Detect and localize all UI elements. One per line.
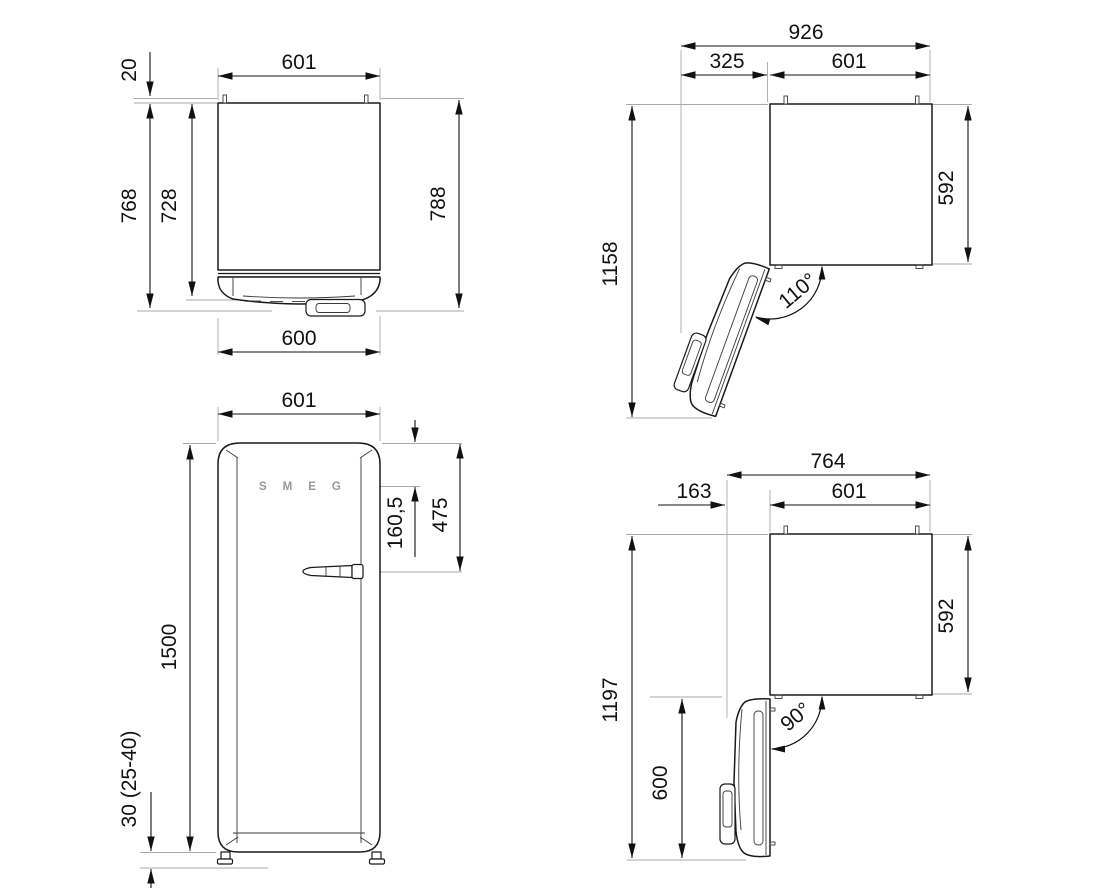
dim-control-offset: 160,5 [384, 497, 407, 550]
rear-spacer-pin [784, 526, 788, 534]
dim-depth-overall: 768 [118, 188, 141, 223]
view-top-closed: 601 20 768 728 788 600 [118, 51, 464, 355]
cabinet-top-view [770, 104, 932, 265]
dim-depth-overall: 1158 [599, 241, 622, 286]
arc-arrow-door [771, 746, 785, 753]
dim-depth-body: 592 [935, 598, 958, 633]
dim-width-overall: 926 [788, 21, 823, 44]
view-top-open-110: 926 325 601 1158 592 110° [599, 21, 972, 419]
cabinet-front-view [218, 443, 380, 852]
handle-front-view [303, 566, 352, 578]
dim-width-body: 601 [831, 480, 866, 503]
handle [720, 784, 735, 844]
rear-spacer-pin [916, 526, 920, 534]
dim-width-top: 601 [281, 51, 316, 74]
dim-door-width: 600 [649, 765, 672, 800]
view-front: SMEG 601 160,5 475 1500 30 (25-40) [118, 389, 462, 888]
technical-drawing: 601 20 768 728 788 600 [0, 0, 1111, 893]
door-panel [734, 699, 770, 857]
dim-feet-height: 30 (25-40) [118, 731, 141, 828]
dim-width-bottom: 600 [281, 327, 316, 350]
dim-width: 601 [281, 389, 316, 412]
door-open-90 [720, 699, 775, 857]
rear-spacer-pin [223, 95, 227, 103]
dim-depth-body: 728 [158, 188, 181, 223]
dim-door-protrusion: 163 [676, 480, 711, 503]
rear-spacer-pin [916, 96, 920, 104]
dim-width-body: 601 [831, 50, 866, 73]
foot-base [370, 859, 385, 864]
dim-door-protrusion: 325 [709, 50, 744, 73]
arc-arrow-door [756, 318, 770, 325]
rear-spacer-pin [784, 96, 788, 104]
dim-height: 1500 [158, 624, 181, 671]
foot-base [218, 859, 233, 864]
cabinet-top-view [770, 534, 932, 695]
dim-rear-gap: 20 [118, 58, 141, 81]
rear-spacer-pin [365, 95, 369, 103]
dim-door-angle: 110° [774, 269, 821, 314]
foot [372, 852, 381, 859]
arc-arrow-up [819, 266, 826, 280]
foot [221, 852, 230, 859]
dim-handle-offset: 475 [429, 497, 452, 532]
dim-depth-body: 592 [935, 170, 958, 205]
dim-width-overall: 764 [810, 450, 845, 473]
view-top-open-90: 764 163 601 1197 600 592 90° [599, 450, 972, 860]
dim-depth-overall: 1197 [599, 677, 622, 722]
brand-logo: SMEG [259, 481, 357, 493]
dim-depth-total: 788 [427, 186, 450, 221]
handle-mount [352, 565, 363, 579]
handle-top-view [306, 300, 365, 317]
cabinet-top-view [218, 103, 380, 270]
door-open-110 [668, 252, 774, 419]
arc-arrow-up [819, 696, 826, 710]
